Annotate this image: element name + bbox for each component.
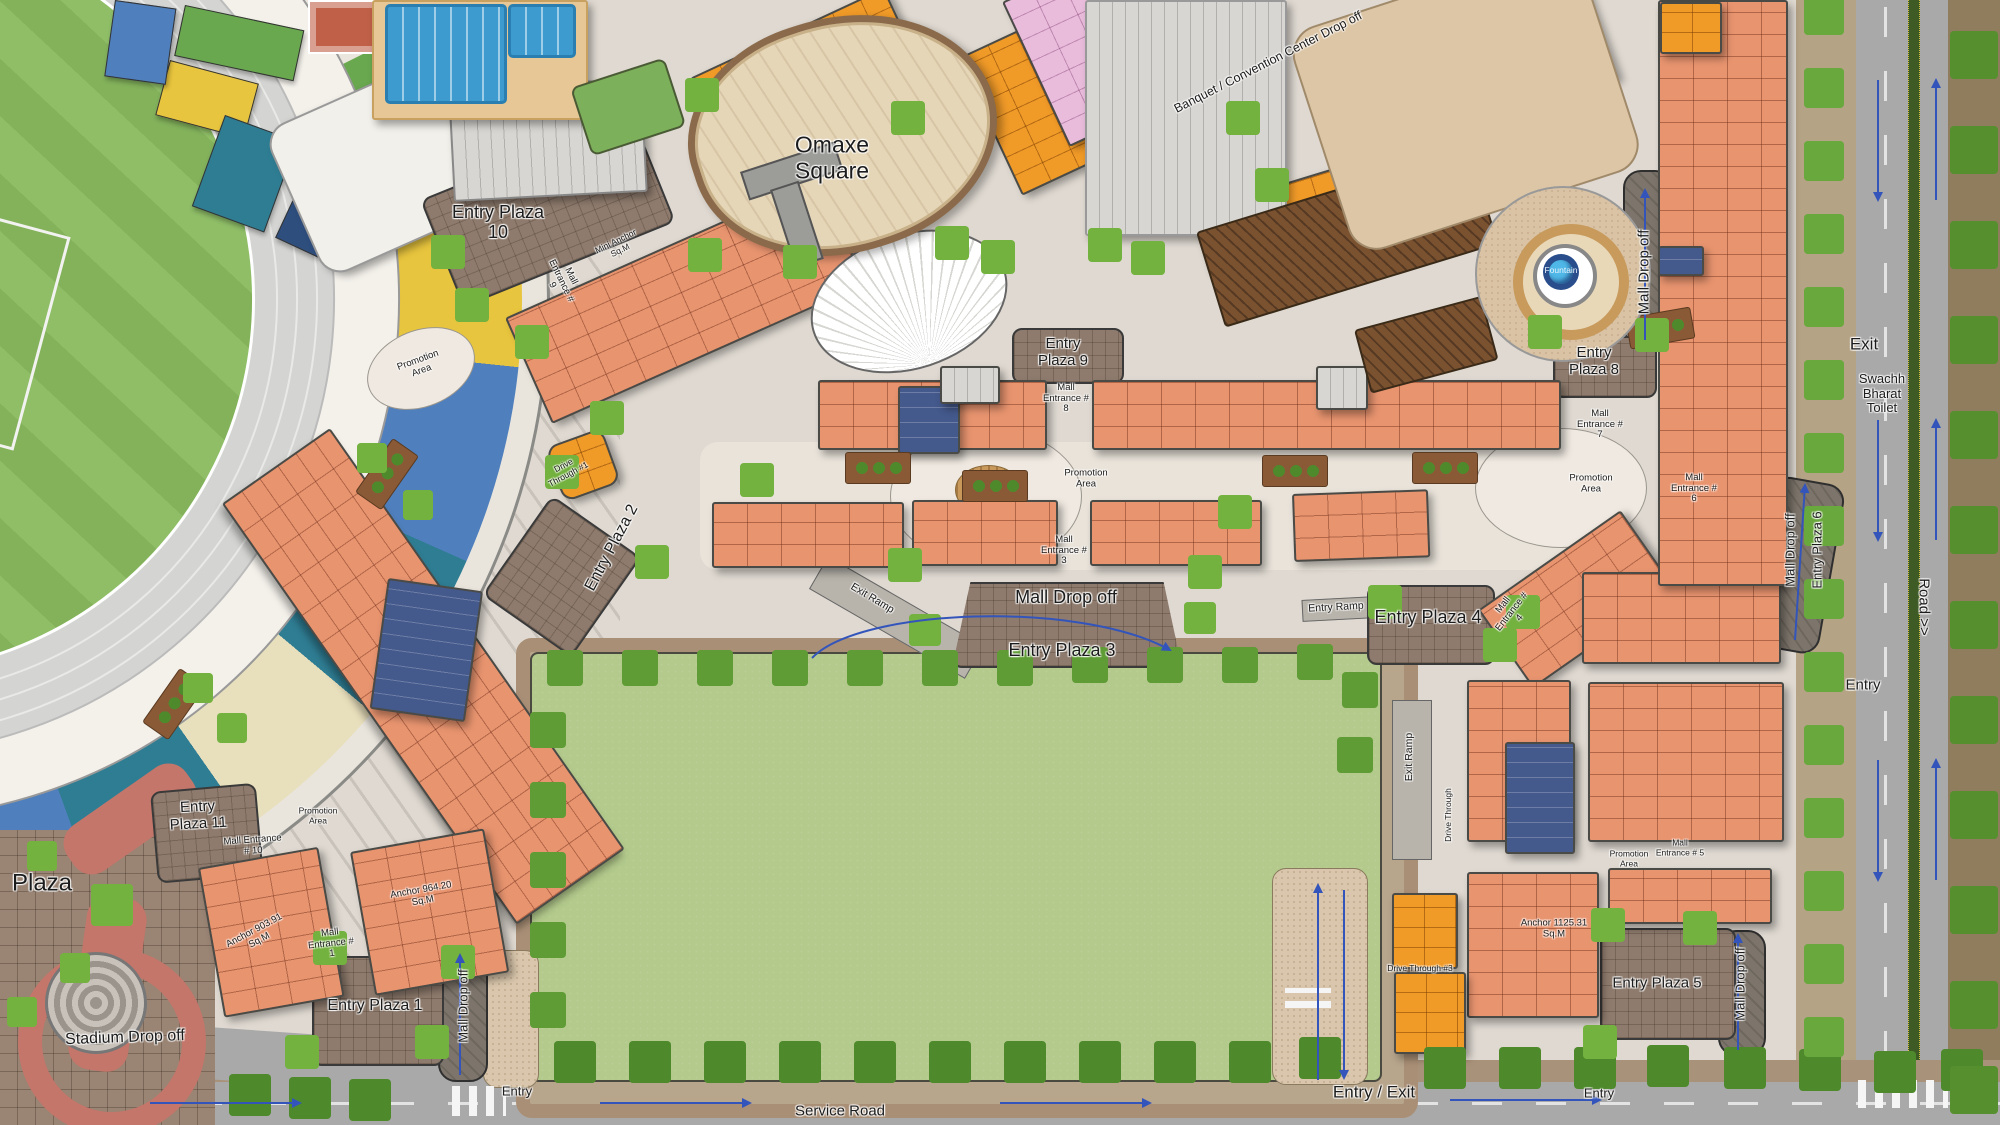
entry-plaza-1-label: Entry Plaza 1 bbox=[327, 997, 422, 1015]
mall-entrance-5-label: Mall Entrance # 5 bbox=[1655, 838, 1705, 857]
mall-entrance-3-label: Mall Entrance # 3 bbox=[1039, 535, 1089, 567]
mall-dropoff-se-label: Mall Drop off bbox=[1734, 947, 1749, 1020]
anchor-1125-label: Anchor 1125.31 Sq.M bbox=[1518, 918, 1590, 939]
fountain-label: Fountain bbox=[1544, 266, 1577, 276]
swachh-bharat-toilet-label: Swachh Bharat Toilet bbox=[1848, 372, 1916, 416]
promotion-area-label: Promotion Area bbox=[1057, 468, 1115, 489]
promotion-area-label: Promotion Area bbox=[1601, 849, 1657, 868]
mall-entrance-1-label: Mall Entrance # 1 bbox=[304, 926, 357, 963]
exit-ramp-se-label: Exit Ramp bbox=[1404, 733, 1416, 781]
entry-plaza-10-label: Entry Plaza 10 bbox=[446, 202, 550, 242]
entry-plaza-9-label: Entry Plaza 9 bbox=[1030, 336, 1096, 370]
mall-entrance-7-label: Mall Entrance # 7 bbox=[1575, 409, 1625, 441]
site-plan-canvas: Omaxe Square Plaza Entry Plaza 10 Entry … bbox=[0, 0, 2000, 1125]
promotion-area-label: Promotion Area bbox=[290, 806, 346, 825]
entry-exit-label: Entry / Exit bbox=[1333, 1082, 1415, 1101]
mall-dropoff-east-label: Mall Drop off bbox=[1784, 513, 1799, 586]
plaza-label: Plaza bbox=[12, 871, 72, 898]
promotion-area-label: Promotion Area bbox=[1562, 473, 1620, 494]
entry-south-left-label: Entry bbox=[502, 1085, 532, 1100]
road-label: Road >> bbox=[1915, 578, 1932, 636]
entry-plaza-3-label: Entry Plaza 3 bbox=[1008, 640, 1115, 660]
service-road-label: Service Road bbox=[795, 1104, 885, 1121]
drive-through-3-label: Drive Through #3 bbox=[1387, 964, 1453, 974]
mall-dropoff-sw-label: Mall Drop off bbox=[457, 969, 472, 1042]
drive-through-label: Drive Through bbox=[1444, 788, 1454, 842]
circulation-arrows bbox=[0, 0, 2000, 1125]
entry-plaza-11-label: Entry Plaza 11 bbox=[160, 797, 236, 834]
entry-plaza-4-label: Entry Plaza 4 bbox=[1374, 607, 1481, 627]
mall-entrance-8-label: Mall Entrance # 8 bbox=[1041, 383, 1091, 415]
omaxe-square-label: Omaxe Square bbox=[757, 132, 907, 184]
entry-plaza-5-label: Entry Plaza 5 bbox=[1612, 976, 1701, 993]
entry-east-label: Entry bbox=[1845, 678, 1880, 695]
entry-plaza-6-label: Entry Plaza 6 bbox=[1811, 511, 1826, 588]
exit-label: Exit bbox=[1850, 334, 1878, 353]
mall-dropoff-ne-label: Mall Drop off bbox=[1637, 230, 1654, 315]
mall-dropoff-center-label: Mall Drop off bbox=[1015, 587, 1117, 607]
mall-entrance-10-label: Mall Entrance # 10 bbox=[221, 833, 284, 859]
mall-entrance-6-label: Mall Entrance # 6 bbox=[1669, 473, 1719, 505]
entry-plaza-8-label: Entry Plaza 8 bbox=[1561, 345, 1627, 379]
entry-south-right-label: Entry bbox=[1584, 1087, 1614, 1102]
